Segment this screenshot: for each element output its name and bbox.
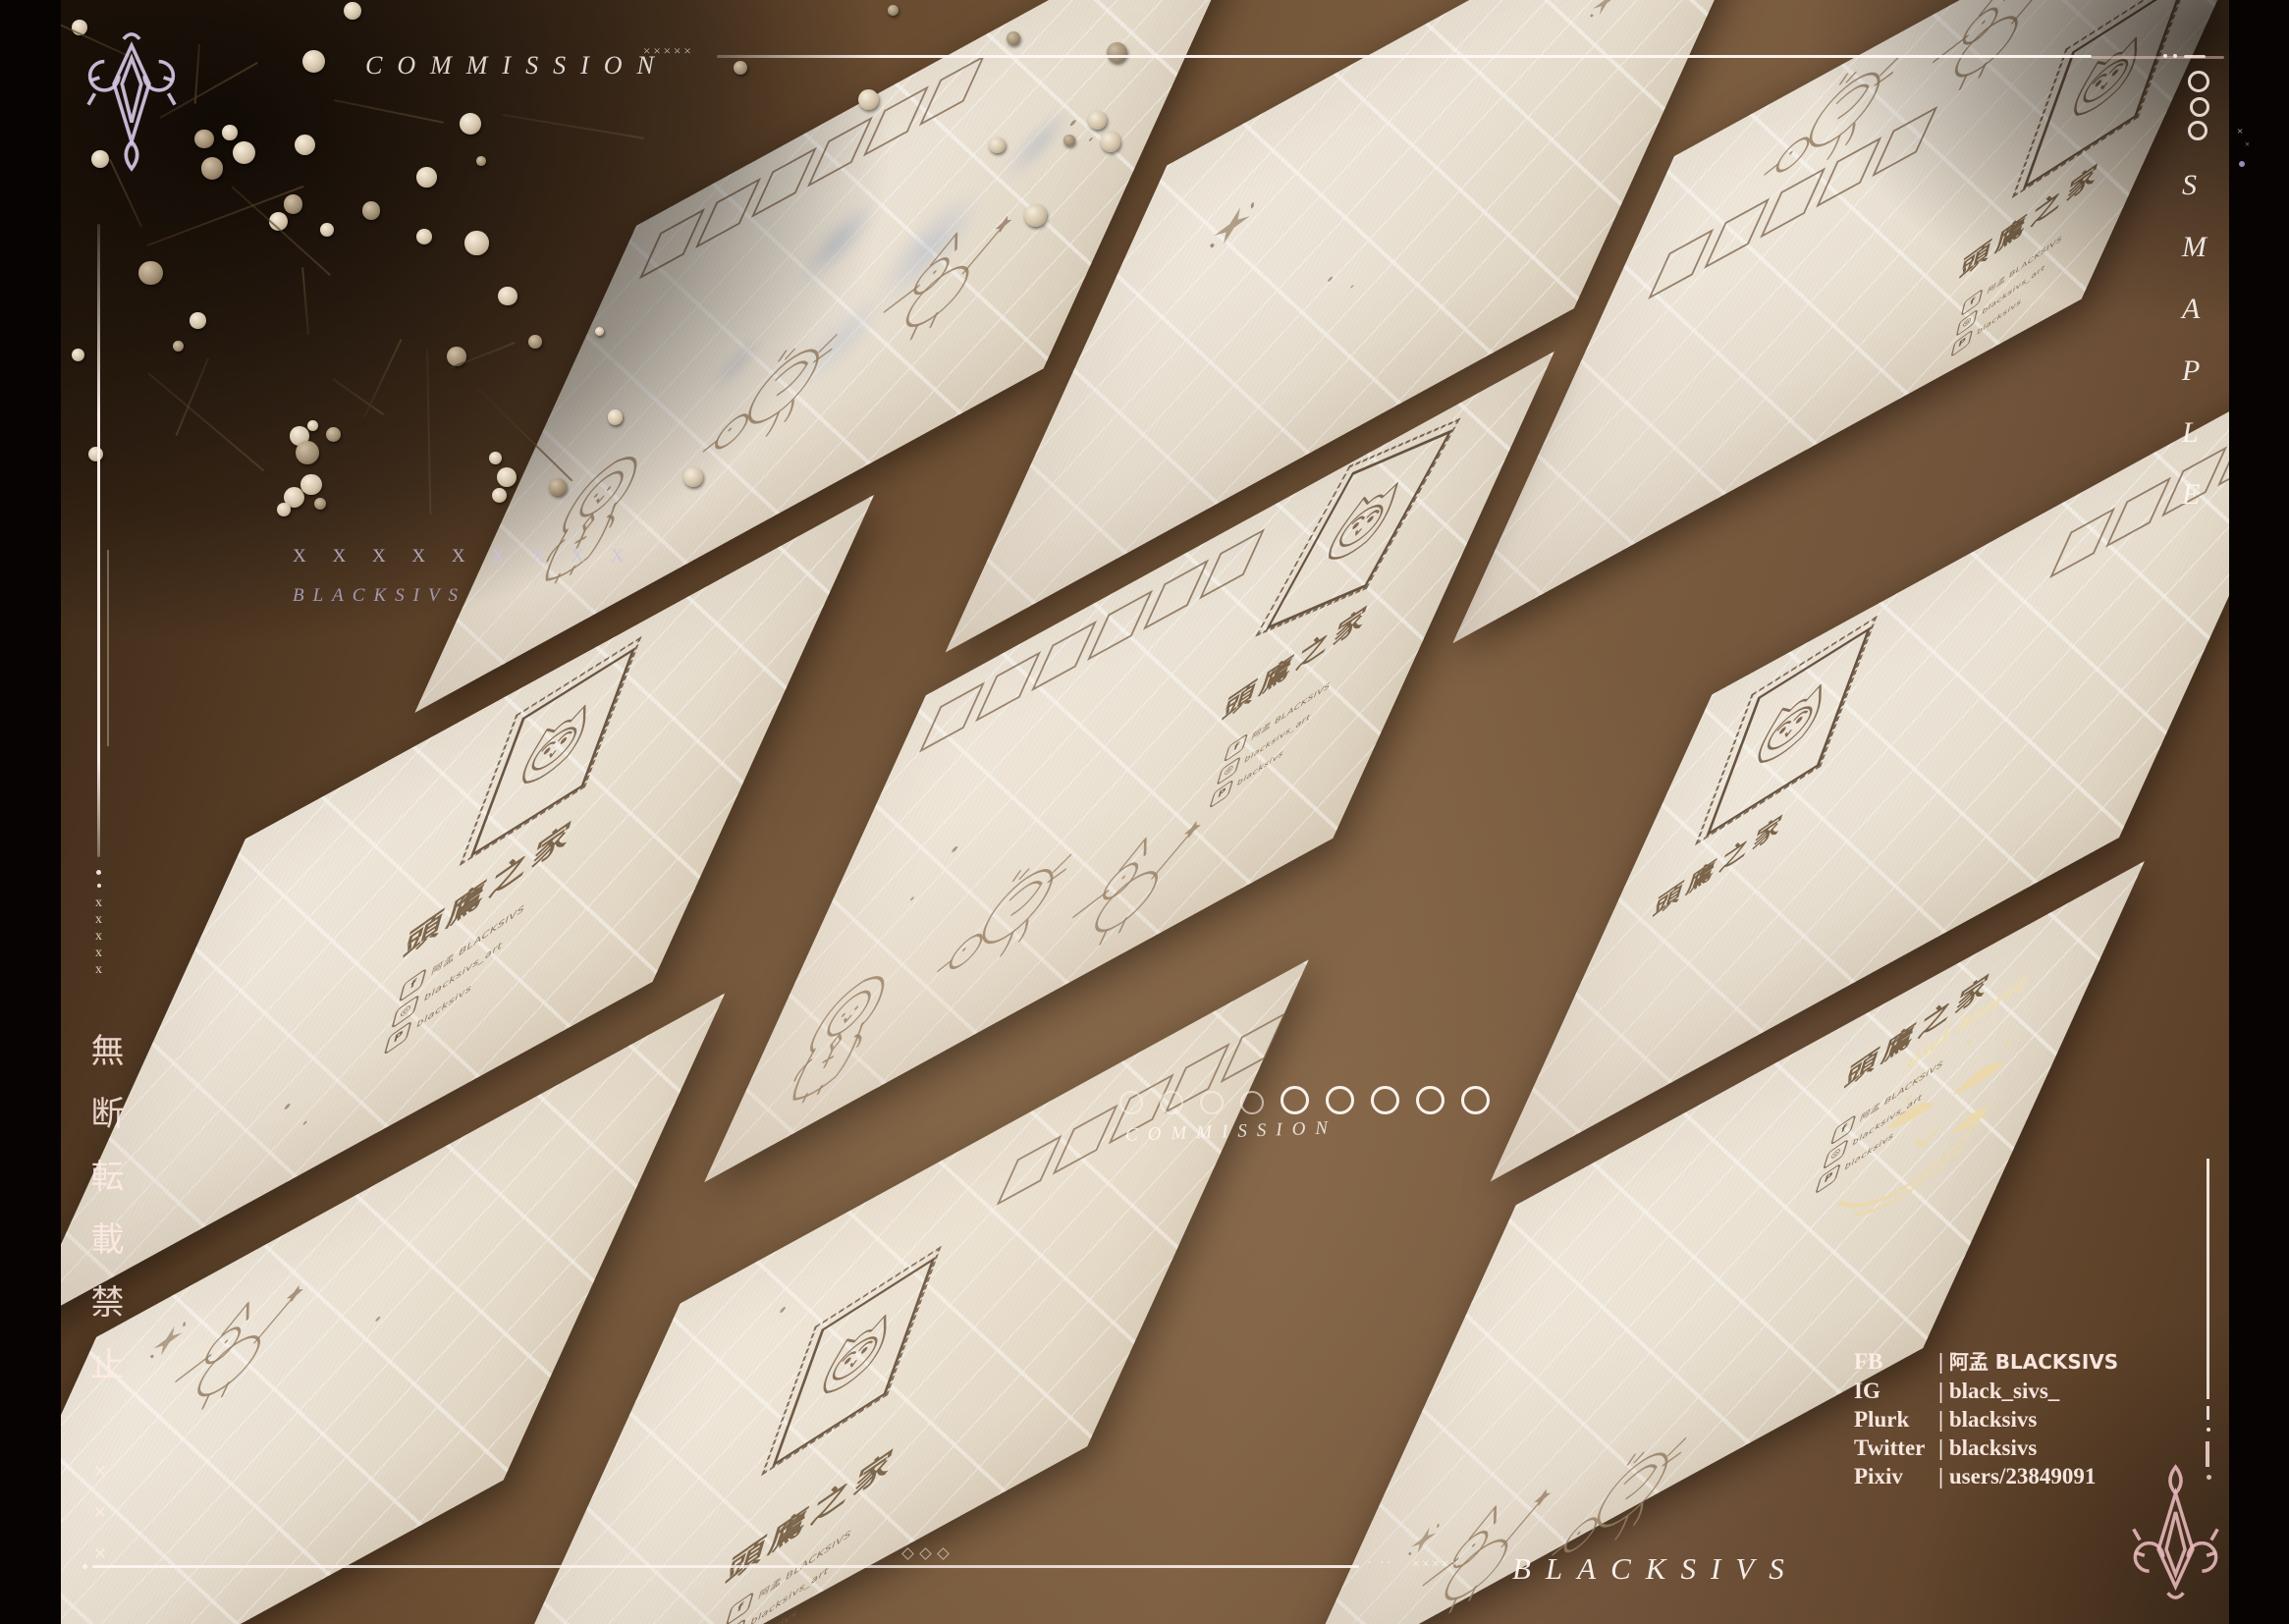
postal-box <box>2105 477 2171 548</box>
black-edge-left <box>0 0 61 1624</box>
postal-box <box>1031 621 1097 691</box>
postal-box <box>919 681 985 752</box>
postal-box <box>1165 1043 1230 1113</box>
postal-box <box>1704 198 1770 269</box>
plurk-icon: P <box>1950 329 1973 357</box>
postal-box <box>2161 446 2227 516</box>
postal-box <box>639 208 705 279</box>
sparkle-doodle <box>1584 0 1626 27</box>
black-edge-right: × × <box>2229 0 2289 1624</box>
postal-box <box>1143 560 1209 630</box>
owl-stamp-icon <box>772 1257 936 1467</box>
plurk-icon: P <box>384 1020 412 1056</box>
postal-box <box>975 651 1041 722</box>
bent-bird-doodle <box>917 825 1093 1011</box>
photo-stage: 頭鷹之家 f阿孟 BLACKSIVS◎blacksivs_artPblacksi… <box>0 0 2289 1624</box>
postal-box <box>1648 229 1714 299</box>
postal-box <box>2049 508 2115 578</box>
stamp-frame <box>761 1246 942 1476</box>
postal-box <box>1087 590 1153 661</box>
postal-box <box>997 1135 1063 1206</box>
sparkle-doodle <box>1201 194 1261 261</box>
postal-box <box>1053 1104 1118 1174</box>
postal-box <box>1109 1073 1174 1144</box>
postal-box <box>1199 528 1265 599</box>
bent-bird-doodle <box>519 1597 695 1624</box>
